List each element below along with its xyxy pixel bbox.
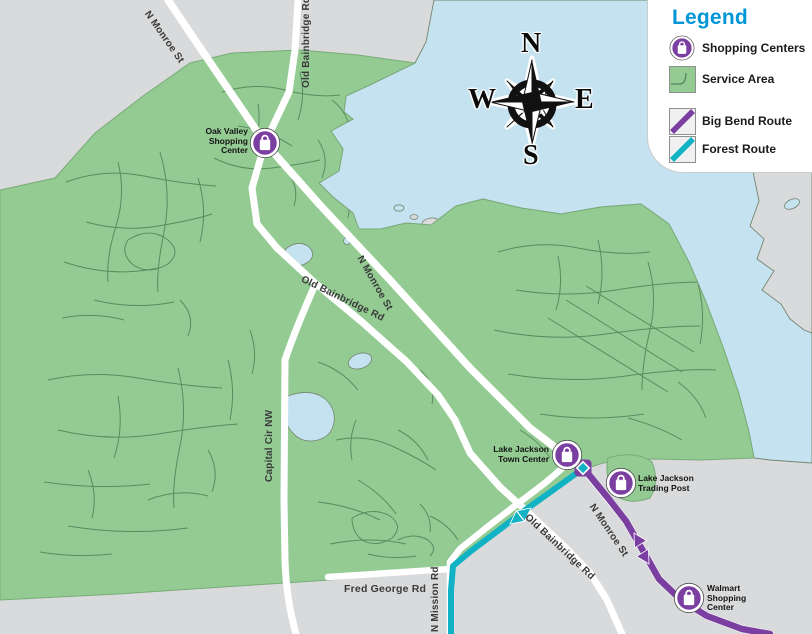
shopping-center-marker-walmart	[674, 583, 703, 612]
road-label-old-bainbridge-rd-north: Old Bainbridge Rd	[301, 0, 312, 88]
road-label-fred-george-rd: Fred George Rd	[344, 583, 426, 595]
legend-item-big-bend-route: Big Bend Route	[668, 106, 792, 136]
legend-title: Legend	[672, 6, 748, 30]
shopping-center-label-town-center: Lake Jackson Town Center	[469, 445, 549, 464]
service-area-swatch	[668, 65, 696, 93]
compass-west-label: W	[468, 84, 496, 116]
legend-label: Forest Route	[702, 142, 776, 156]
big-bend-route-swatch	[668, 107, 696, 135]
shopping-bag-icon	[668, 34, 696, 62]
shopping-center-marker-oak-valley	[250, 128, 279, 157]
shopping-center-marker-lake-jackson-town-center	[552, 440, 581, 469]
compass-east-label: E	[575, 84, 594, 116]
compass-south-label: S	[523, 140, 539, 172]
legend-item-forest-route: Forest Route	[668, 134, 776, 164]
shopping-center-label-walmart: Walmart Shopping Center	[707, 584, 746, 613]
road-label-capital-cir-nw: Capital Cir NW	[264, 410, 275, 482]
forest-route-swatch	[668, 135, 696, 163]
legend-item-service-area: Service Area	[668, 64, 774, 94]
shopping-center-label-trading-post: Lake Jackson Trading Post	[638, 474, 694, 493]
legend-label: Service Area	[702, 72, 774, 86]
legend-label: Shopping Centers	[702, 41, 805, 55]
legend-panel: Legend Shopping Centers Service Area Big…	[647, 0, 812, 173]
shopping-center-label-oak-valley: Oak Valley Shopping Center	[180, 127, 248, 156]
compass-north-label: N	[521, 28, 541, 60]
transit-route-map: N W E S N Monroe St Old Bainbridge Rd Ol…	[0, 0, 812, 634]
lake-island	[410, 215, 418, 220]
legend-item-shopping-centers: Shopping Centers	[668, 33, 805, 63]
legend-label: Big Bend Route	[702, 114, 792, 128]
road-label-n-mission-rd: N Mission Rd	[430, 566, 441, 632]
shopping-center-marker-lake-jackson-trading-post	[606, 468, 635, 497]
